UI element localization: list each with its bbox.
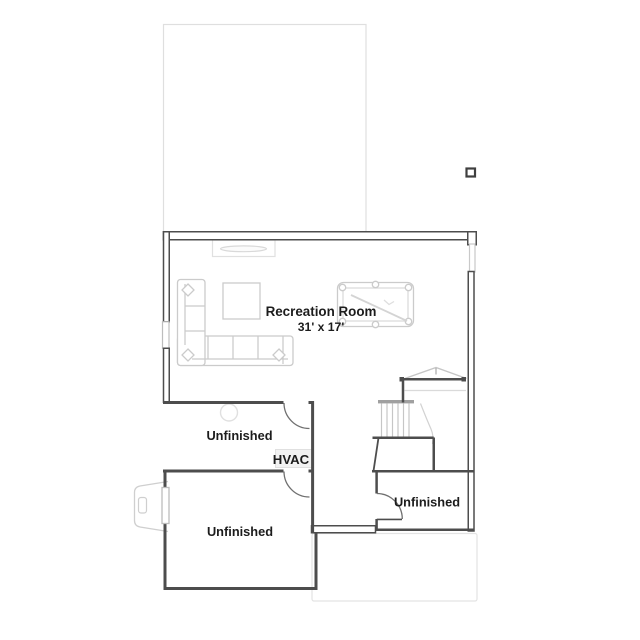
recreation-room-dimensions: 31' x 17' <box>298 320 345 334</box>
upper-level-outline <box>164 25 367 234</box>
recreation-room-label: Recreation Room <box>266 304 377 319</box>
unfinished-bottom-right-label: Unfinished <box>394 495 460 510</box>
floor-plan-page: Recreation Room 31' x 17' Unfinished HVA… <box>0 0 640 640</box>
exterior-walls <box>163 232 477 533</box>
unfinished-bottom-left-label: Unfinished <box>207 524 273 539</box>
sump-circle <box>221 404 238 421</box>
square-marker-icon <box>467 169 476 177</box>
media-console <box>213 240 276 257</box>
coffee-table <box>223 283 260 319</box>
left-window <box>162 488 169 524</box>
floor-plan-drawing: Recreation Room 31' x 17' Unfinished HVA… <box>0 0 640 640</box>
hvac-label: HVAC <box>273 452 310 467</box>
lower-right-outline-region <box>312 534 477 602</box>
unfinished-top-label: Unfinished <box>206 428 272 443</box>
